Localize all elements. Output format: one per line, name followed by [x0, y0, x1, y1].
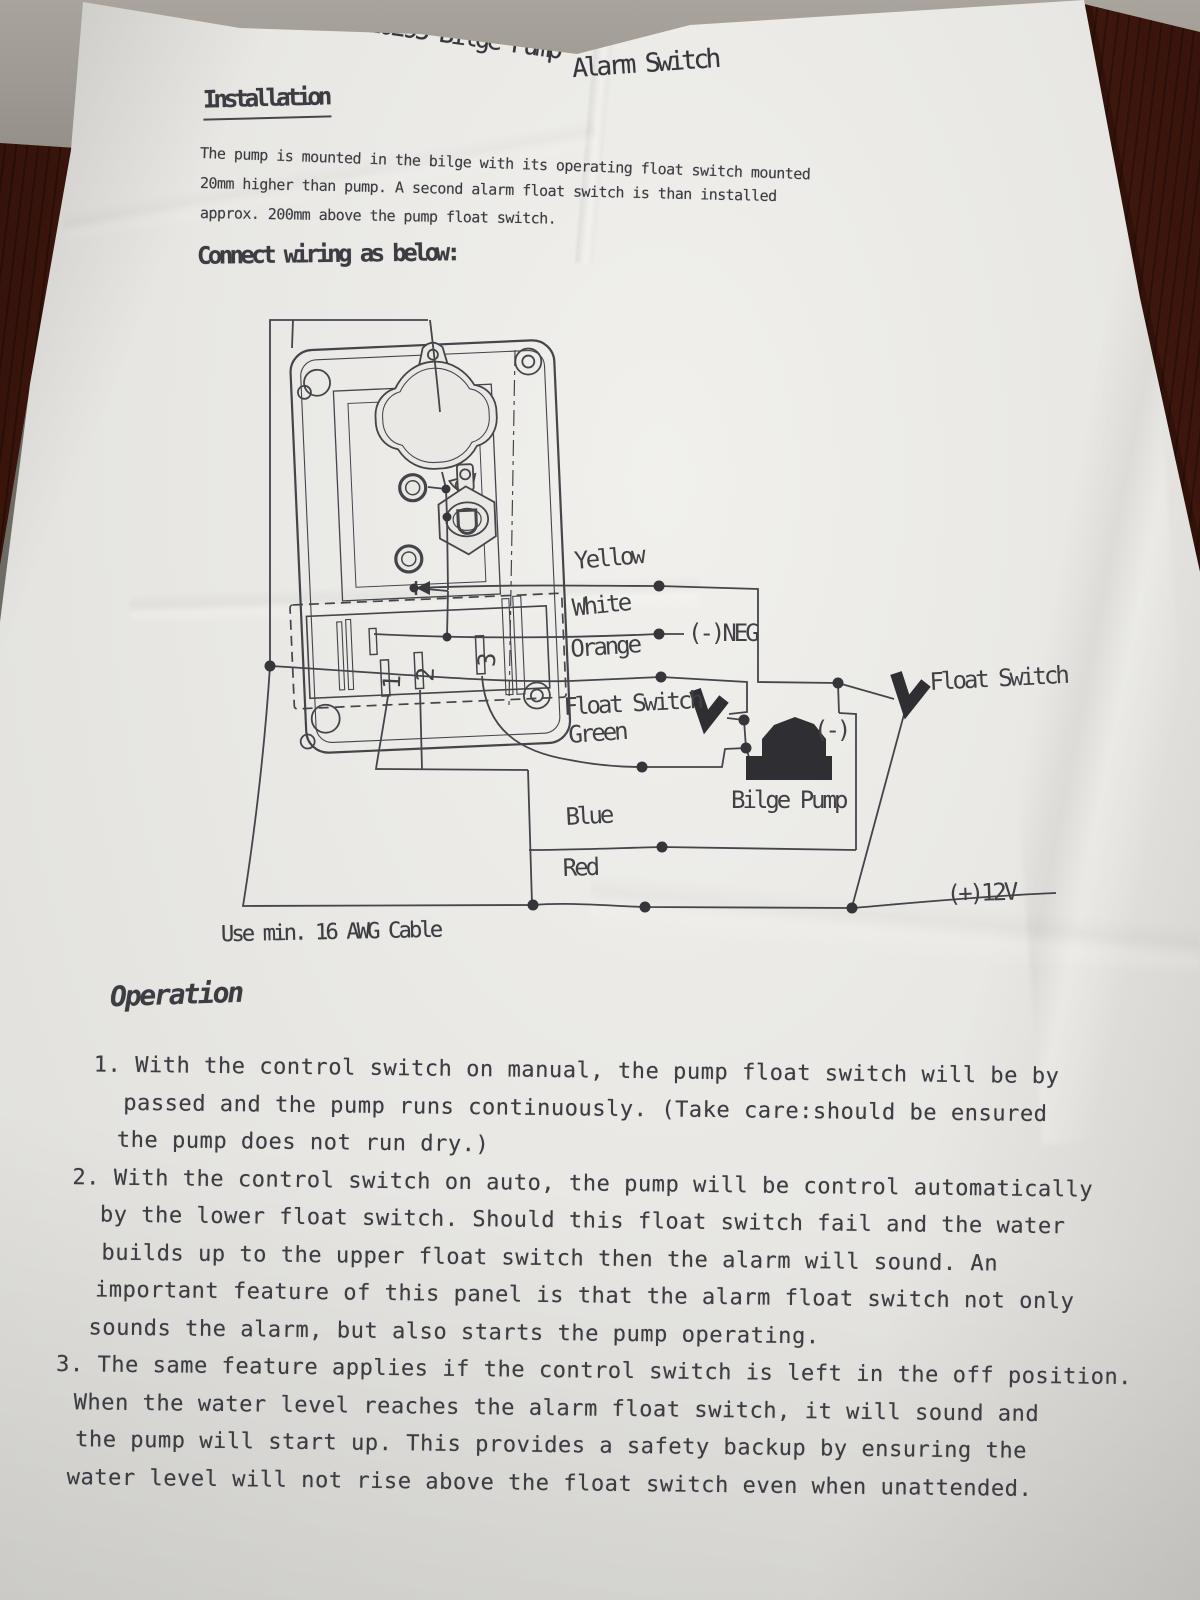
- terminal-label: 3: [473, 653, 502, 667]
- installation-paragraph: The pump is mounted in the bilge with it…: [200, 138, 811, 228]
- terminal-blade: [475, 636, 485, 674]
- installation-heading: Installation: [203, 82, 332, 120]
- wire-yellow: [414, 586, 894, 700]
- wire-label-yellow: Yellow: [573, 541, 647, 575]
- label-neg: (-)NEG: [688, 619, 758, 647]
- led-indicator-icon: [399, 474, 426, 501]
- label-float-switch-lower: Float Switch: [563, 686, 703, 721]
- wire-label-white: White: [571, 588, 633, 622]
- rocker-switch-icon: 1 2 3: [290, 593, 566, 709]
- wire-label-red: Red: [562, 853, 599, 882]
- panel-screw-hole: [523, 682, 550, 709]
- connect-wiring-heading: Connect wiring as below:: [197, 238, 458, 270]
- toggle-switch-icon: [437, 463, 497, 555]
- wiring-diagram: 1 2 3: [190, 290, 1070, 960]
- panel-screw-hole: [515, 348, 542, 375]
- wire-float-upper-drop: [852, 707, 906, 907]
- title-part2: Alarm Switch: [572, 44, 720, 84]
- led-indicator-icon: [395, 545, 422, 572]
- label-pump-neg: (-): [814, 716, 848, 744]
- photo-of-instruction-sheet: 10295 Bilge PumpAlarm Switch Installatio…: [0, 0, 1200, 1600]
- wire-pump-loop: [838, 683, 856, 850]
- label-float-switch-upper: Float Switch: [929, 661, 1069, 696]
- operation-heading: Operation: [109, 976, 242, 1014]
- float-switch-icon-upper: [896, 673, 926, 707]
- instruction-paper: 10295 Bilge PumpAlarm Switch Installatio…: [0, 0, 1200, 1600]
- wire-red-drop: [528, 770, 532, 904]
- operation-list: 1. With the control switch on manual, th…: [53, 1046, 1188, 1510]
- terminal-label: 1: [378, 675, 407, 689]
- panel-screw-hole: [303, 369, 330, 396]
- label-bilge-pump: Bilge Pump: [731, 786, 847, 814]
- wire-label-orange: Orange: [569, 630, 642, 663]
- wire-label-green: Green: [567, 717, 628, 749]
- wire-label-blue: Blue: [565, 800, 615, 830]
- cable-note: Use min. 16 AWG Cable: [221, 918, 441, 948]
- control-panel-drawing: [284, 337, 571, 753]
- label-power-12v: (+)12V: [946, 878, 1018, 908]
